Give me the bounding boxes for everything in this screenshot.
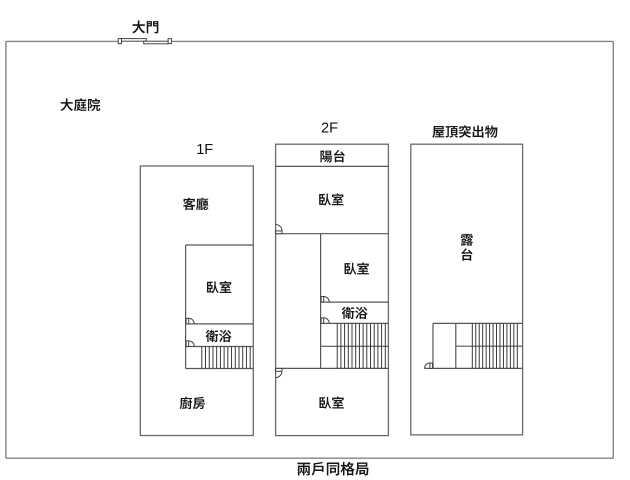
svg-text:1F: 1F [196,142,213,158]
svg-text:2F: 2F [321,121,338,137]
